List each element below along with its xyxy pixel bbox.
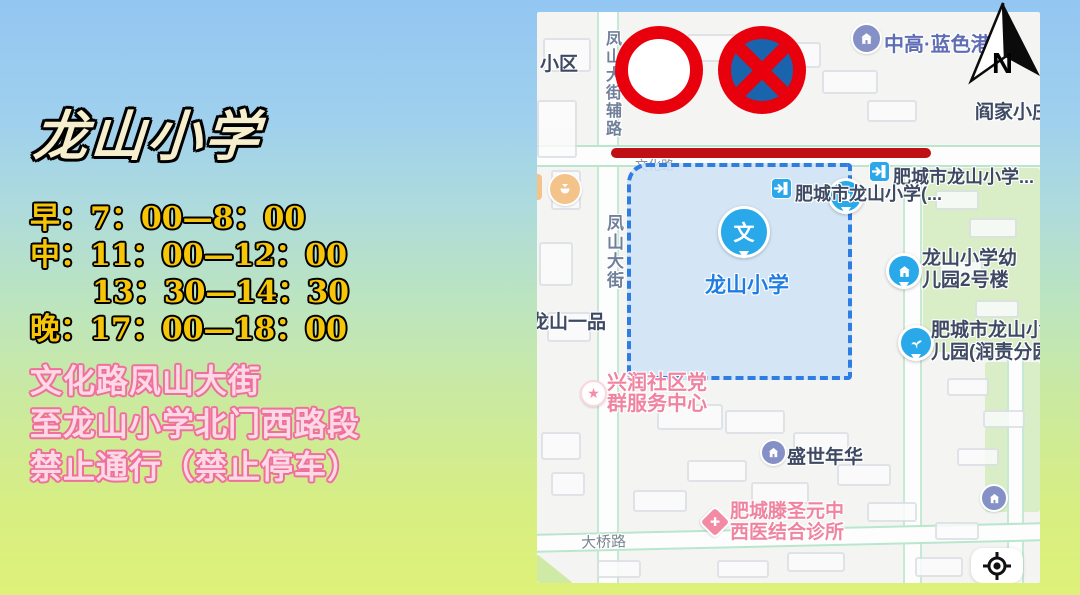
gate-icon[interactable]: [771, 178, 792, 204]
building-outline: [935, 522, 979, 540]
building-outline: [633, 490, 687, 512]
building-icon: [988, 492, 1001, 505]
building-outline: [541, 432, 581, 460]
schedule-block: 早：7：00—8：00 中：11：00—12：00 13：30—14：30 晚：…: [30, 200, 349, 348]
building-outline: [537, 100, 577, 158]
schedule-line-evening: 晚：17：00—18：00: [30, 311, 349, 348]
building-icon: [859, 31, 874, 46]
crosshair-icon: [982, 550, 1012, 582]
label-school-gate-west[interactable]: 肥城市龙山小学(...: [795, 180, 942, 206]
label-line: 兴润社区党: [607, 373, 707, 394]
building-outline: [867, 502, 917, 522]
page-title: 龙山小学: [31, 92, 265, 171]
kindergarten-runze-pin[interactable]: [898, 325, 934, 361]
cross-glyph: ✚: [710, 515, 720, 529]
kindergarten-no2-pin[interactable]: [886, 253, 922, 289]
north-compass: N: [966, 0, 1058, 104]
label-line: 西医结合诊所: [730, 522, 844, 543]
residence-icon[interactable]: [760, 439, 787, 466]
map[interactable]: 文化路 小区 凤山大街辅路 凤山大街 大桥路 阎家小庄 龙山一品 中高·蓝色港湾…: [537, 12, 1040, 583]
schedule-line-noon: 中：11：00—12：00: [30, 237, 349, 274]
no-stopping-sign-icon: [718, 26, 806, 114]
label-daqiao-road: 大桥路: [581, 530, 627, 553]
label-kindergarten-runze[interactable]: 肥城市龙山小 儿园(润责分园: [931, 320, 1040, 364]
label-kindergarten-no2[interactable]: 龙山小学幼 儿园2号楼: [922, 248, 1017, 292]
label-line: 儿园2号楼: [922, 270, 1017, 292]
building-outline: [957, 448, 999, 466]
label-clinic[interactable]: 肥城滕圣元中 西医结合诊所: [730, 501, 844, 543]
label-line: 肥城滕圣元中: [730, 501, 844, 522]
star-glyph: ★: [587, 385, 600, 402]
label-shengshi[interactable]: 盛世年华: [787, 442, 863, 469]
park-area: [537, 554, 573, 583]
restaurant-icon[interactable]: [548, 172, 582, 206]
building-outline: [975, 300, 1019, 318]
building-outline: [867, 100, 917, 122]
building-outline: [983, 410, 1025, 428]
schedule-line-afternoon: 13：30—14：30: [30, 274, 349, 311]
label-xingrun-center[interactable]: 兴润社区党 群服务中心: [607, 373, 707, 415]
restricted-road-line: [611, 148, 931, 158]
notice-line-section: 至龙山小学北门西路段: [30, 403, 360, 446]
building-outline: [725, 410, 785, 434]
locate-button[interactable]: [971, 548, 1023, 583]
compass-n-label: N: [992, 48, 1013, 81]
notice-line-road: 文化路凤山大街: [30, 360, 360, 403]
star-icon[interactable]: ★: [580, 380, 607, 407]
label-line: 肥城市龙山小: [931, 320, 1040, 342]
building-outline: [539, 242, 573, 286]
residence-icon[interactable]: [980, 484, 1008, 512]
building-outline: [915, 557, 963, 577]
notice-line-ban: 禁止通行（禁止停车）: [30, 446, 360, 489]
school-marker-pin[interactable]: 文: [718, 206, 770, 258]
schedule-line-morning: 早：7：00—8：00: [30, 200, 349, 237]
building-icon: [767, 446, 780, 459]
label-xiaoqu: 小区: [540, 49, 578, 76]
building-outline: [717, 560, 769, 578]
building-outline: [597, 560, 641, 578]
bowl-icon: [557, 181, 573, 197]
building-outline: [822, 70, 878, 94]
notice-block: 文化路凤山大街 至龙山小学北门西路段 禁止通行（禁止停车）: [30, 360, 360, 489]
clipped-poi-icon: [537, 174, 542, 200]
school-marker-glyph: 文: [734, 217, 755, 247]
label-line: 儿园(润责分园: [931, 342, 1040, 364]
building-icon: [897, 264, 912, 279]
label-line: 龙山小学幼: [922, 248, 1017, 270]
no-entry-sign-icon: [615, 26, 703, 114]
label-fengshan-street: 凤山大街: [601, 214, 626, 290]
building-outline: [969, 218, 1017, 238]
label-longshan-yipin[interactable]: 龙山一品: [537, 307, 606, 334]
bird-icon: [909, 336, 924, 351]
building-outline: [551, 472, 585, 496]
label-line: 群服务中心: [607, 394, 707, 415]
building-outline: [947, 378, 989, 396]
building-outline: [687, 460, 747, 482]
label-school[interactable]: 龙山小学: [705, 269, 789, 299]
residence-icon[interactable]: [851, 23, 882, 54]
building-outline: [787, 552, 845, 572]
